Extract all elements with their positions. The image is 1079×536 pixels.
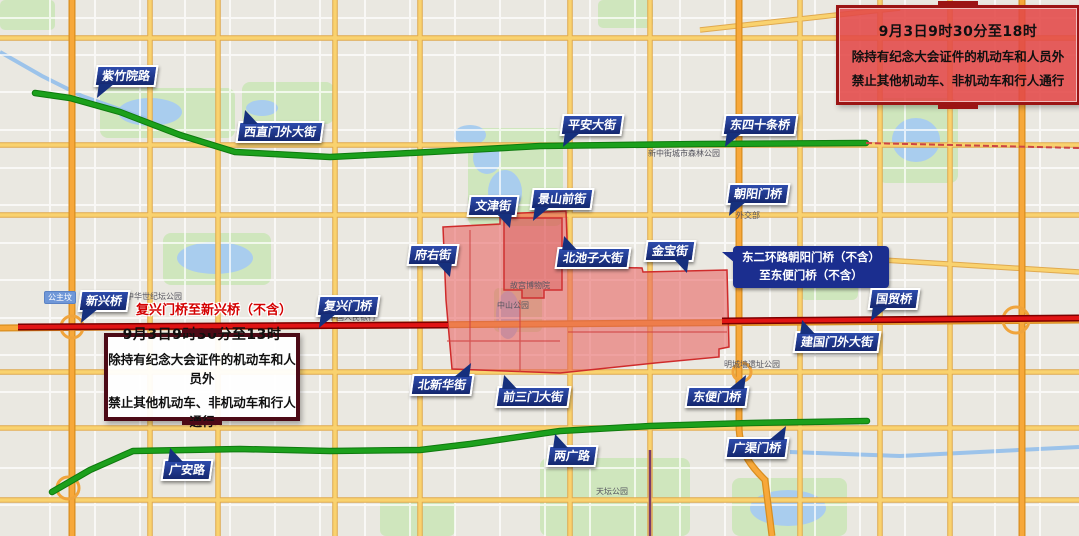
section-label-line2: 至东便门桥（不含） <box>742 267 880 285</box>
road-label-fuxingmen-br: 复兴门桥 <box>315 295 380 317</box>
road-label-zizhuyuan-rd: 紫竹院路 <box>93 65 158 87</box>
poi-label: 中山公园 <box>497 300 529 311</box>
notice-13h-time: 9月3日9时30分至13时 <box>108 324 296 344</box>
road-label-beichizi-st: 北池子大街 <box>554 247 631 269</box>
section-label-line1: 东二环路朝阳门桥（不含） <box>742 249 880 267</box>
metro-station-badge: 公主坟 <box>44 291 76 304</box>
road-label-dongsishitiao-br: 东四十条桥 <box>721 114 798 136</box>
traffic-restriction-map: 中华世纪坛公园 中国人民银行 故宫博物院 中山公园 天坛公园 明城墙遗址公园 新… <box>0 0 1079 536</box>
road-label-jinbao-st: 金宝街 <box>643 240 696 262</box>
notice-18h-rule1: 除持有纪念大会证件的机动车和人员外 <box>839 46 1077 65</box>
road-label-beixinhua-st: 北新华街 <box>409 374 474 396</box>
poi-label: 明城墙遗址公园 <box>724 359 780 370</box>
road-label-qiansanmen-st: 前三门大街 <box>494 386 571 408</box>
notice-13h-rule2: 禁止其他机动车、非机动车和行人通行 <box>108 392 296 430</box>
road-label-wenjin-st: 文津街 <box>466 195 519 217</box>
road-label-guangqumen-br: 广渠门桥 <box>724 437 789 459</box>
notice-box-18h: 9月3日9时30分至18时 除持有纪念大会证件的机动车和人员外 禁止其他机动车、… <box>836 5 1079 105</box>
road-label-xizhimenwai-st: 西直门外大街 <box>235 121 324 143</box>
notice-18h-time: 9月3日9时30分至18时 <box>839 21 1077 41</box>
road-label-jianguomenwai-st: 建国门外大街 <box>792 331 881 353</box>
notice-box-13h: 9月3日9时30分至13时 除持有纪念大会证件的机动车和人员外 禁止其他机动车、… <box>104 333 300 421</box>
road-label-guomao-br: 国贸桥 <box>867 288 920 310</box>
road-label-guangan-rd: 广安路 <box>160 459 213 481</box>
road-label-chaoyangmen-br: 朝阳门桥 <box>725 183 790 205</box>
section-label-fuxingmen-xinxing: 复兴门桥至新兴桥（不含） <box>136 299 292 318</box>
notice-13h-rule1: 除持有纪念大会证件的机动车和人员外 <box>108 349 296 387</box>
road-label-jingshanqian-st: 景山前街 <box>529 188 594 210</box>
section-label-east-2nd-ring: 东二环路朝阳门桥（不含） 至东便门桥（不含） <box>733 246 889 288</box>
road-label-xinxing-br: 新兴桥 <box>77 290 130 312</box>
notice-18h-rule2: 禁止其他机动车、非机动车和行人通行 <box>839 70 1077 89</box>
poi-label: 新中街城市森林公园 <box>648 148 720 159</box>
road-label-fuyou-st: 府右街 <box>406 244 459 266</box>
road-label-dongbianmen-br: 东便门桥 <box>684 386 749 408</box>
road-label-liangguang-rd: 两广路 <box>545 445 598 467</box>
road-label-pingan-st: 平安大街 <box>559 114 624 136</box>
poi-label: 天坛公园 <box>596 486 628 497</box>
poi-label: 故宫博物院 <box>510 280 550 291</box>
